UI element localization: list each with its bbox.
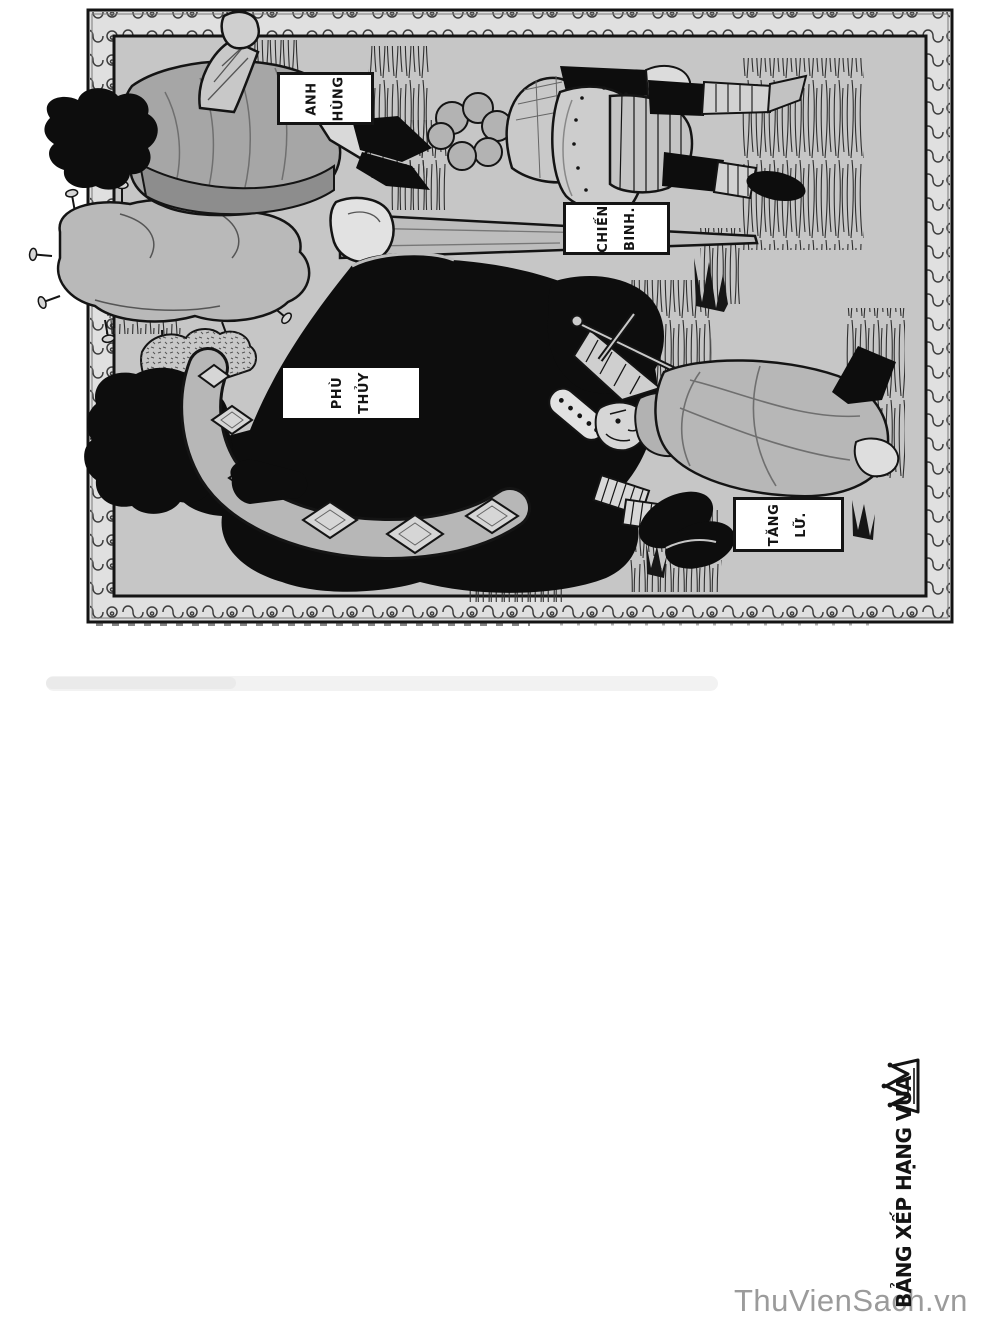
label-warrior-line1: CHIẾN [590,205,617,253]
watermark-text: ThuVienSach.vn [734,1283,968,1319]
label-warrior: CHIẾN BINH. [563,202,670,255]
chapter-title: BẢNG XẾP HẠNG VUA [892,1098,918,1308]
comic-page: ANH HÙNG CHIẾN BINH. PHÙ THỦY TĂNG LỮ. B… [0,0,999,1332]
label-priest: TĂNG LỮ. [733,497,844,552]
label-priest-line2: LỮ. [788,503,815,545]
label-warrior-line2: BINH. [617,205,644,253]
label-wizard-line2: THỦY [351,372,378,414]
label-wizard-line1: PHÙ [324,372,351,414]
label-priest-line1: TĂNG [761,503,788,545]
label-hero-line2: HÙNG [326,76,353,121]
scan-smudge-dark [46,677,236,689]
comic-panel-illustration [0,0,999,1332]
label-hero: ANH HÙNG [277,72,374,125]
label-wizard: PHÙ THỦY [283,368,419,418]
label-hero-line1: ANH [299,76,326,121]
